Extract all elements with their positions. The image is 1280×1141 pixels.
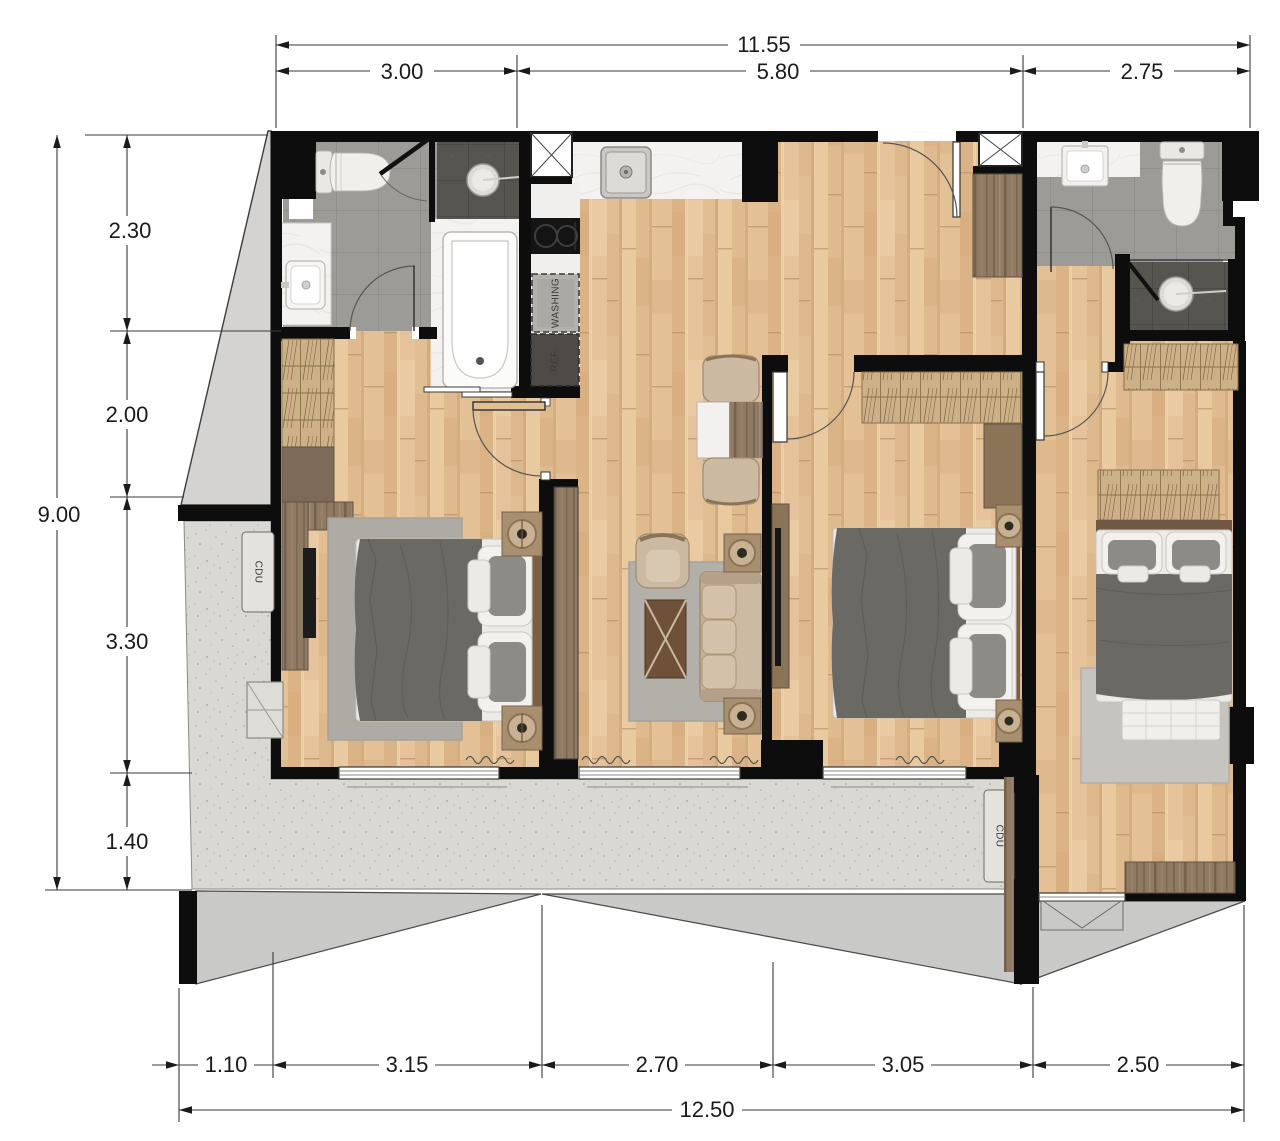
- svg-text:2.75: 2.75: [1121, 59, 1164, 84]
- svg-text:2.00: 2.00: [106, 402, 149, 427]
- svg-text:3.05: 3.05: [882, 1052, 925, 1077]
- svg-text:9.00: 9.00: [38, 502, 81, 527]
- svg-text:2.30: 2.30: [109, 218, 152, 243]
- svg-text:3.00: 3.00: [381, 59, 424, 84]
- svg-text:11.55: 11.55: [737, 32, 790, 57]
- svg-text:3.30: 3.30: [106, 629, 149, 654]
- svg-text:12.50: 12.50: [679, 1097, 734, 1122]
- svg-text:3.15: 3.15: [386, 1052, 429, 1077]
- svg-text:1.10: 1.10: [205, 1052, 248, 1077]
- svg-text:2.70: 2.70: [636, 1052, 679, 1077]
- svg-text:WASHING: WASHING: [551, 278, 562, 328]
- svg-text:5.80: 5.80: [757, 59, 800, 84]
- svg-text:2.50: 2.50: [1117, 1052, 1160, 1077]
- svg-text:CDU: CDU: [993, 825, 1004, 848]
- svg-text:1.40: 1.40: [106, 829, 149, 854]
- svg-text:REF.: REF.: [550, 348, 561, 371]
- svg-text:CDU: CDU: [252, 561, 263, 584]
